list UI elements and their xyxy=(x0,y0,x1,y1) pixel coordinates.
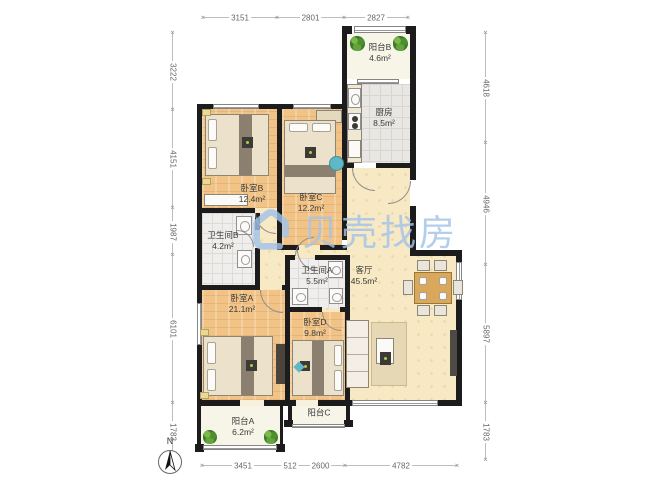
bedroom-c-chair xyxy=(329,156,344,171)
bathroom-b-toilet xyxy=(237,250,252,268)
room-area: 45.5m² xyxy=(351,276,377,287)
dimension-tick: ✕ xyxy=(170,400,175,407)
room-name: 卧室B xyxy=(239,183,265,194)
balcony-c-door-opening xyxy=(296,400,318,406)
balcony-b-post xyxy=(406,26,416,34)
room-name: 卧室A xyxy=(229,293,255,304)
nightstand xyxy=(200,392,209,399)
dimension-tick: ✕ xyxy=(483,457,488,464)
dimension-label-right-3: 1783 xyxy=(481,421,490,443)
room-label-balcony-b: 阳台B4.6m² xyxy=(369,42,392,64)
room-label-bathroom-b: 卫生间B4.2m² xyxy=(207,230,238,252)
west-wall xyxy=(197,104,202,406)
dimension-tick: ✕ xyxy=(170,252,175,259)
dimension-tick: ✕ xyxy=(454,462,459,469)
dining-chair xyxy=(417,260,430,271)
dimension-label-left-2: 1987 xyxy=(168,221,177,243)
compass-north-label: N xyxy=(167,436,174,446)
bathroom-b-right-wall xyxy=(255,248,260,285)
dimension-label-right-1: 4946 xyxy=(481,193,490,215)
kitchen-fridge xyxy=(348,140,361,158)
bedroom-b-bed xyxy=(205,114,269,176)
dimension-tick: ✕ xyxy=(483,140,488,147)
dimension-label-bottom-1: 512 xyxy=(281,461,298,470)
room-name: 阳台B xyxy=(369,42,392,53)
dimension-tick: ✕ xyxy=(483,30,488,37)
dimension-tick: ✕ xyxy=(170,205,175,212)
tv-console xyxy=(450,330,457,376)
room-label-bedroom-a: 卧室A21.1m² xyxy=(229,293,255,315)
bedroom-a-wardrobe xyxy=(276,344,285,384)
room-area: 21.1m² xyxy=(229,304,255,315)
bc-divider-wall xyxy=(277,104,282,250)
dimension-tick: ✕ xyxy=(200,14,205,21)
dimension-label-bottom-3: 4782 xyxy=(390,461,412,470)
dimension-tick: ✕ xyxy=(274,14,279,21)
dimension-label-bottom-2: 2600 xyxy=(310,461,332,470)
room-name: 厨房 xyxy=(373,107,395,118)
bathroom-a-top-wall xyxy=(285,255,295,260)
room-area: 8.5m² xyxy=(373,118,395,129)
dimension-label-left-0: 3222 xyxy=(168,61,177,83)
dimension-tick: ✕ xyxy=(170,30,175,37)
dining-chair xyxy=(417,305,430,316)
room-area: 4.6m² xyxy=(369,53,392,64)
nightstand xyxy=(202,178,211,185)
dimension-label-left-3: 6101 xyxy=(168,318,177,340)
room-area: 4.2m² xyxy=(207,241,238,252)
bedroom-c-bottom-wall xyxy=(320,245,347,250)
balcony-a-right-rail xyxy=(280,406,283,446)
dimension-tick: ✕ xyxy=(199,462,204,469)
bedroom-d-bed xyxy=(292,340,344,396)
east-mid-wall xyxy=(410,206,416,256)
dimension-tick: ✕ xyxy=(342,462,347,469)
kitchen-sink xyxy=(348,88,361,108)
room-name: 卫生间B xyxy=(207,230,238,241)
dimension-label-right-2: 5897 xyxy=(481,323,490,345)
dimension-label-left-1: 4151 xyxy=(168,148,177,170)
bedroom-a-window xyxy=(197,303,202,345)
compass: N xyxy=(152,434,188,478)
dimension-line-left xyxy=(172,33,173,460)
dimension-tick: ✕ xyxy=(405,14,410,21)
dining-chair xyxy=(434,260,447,271)
bedroom-c-bed xyxy=(284,120,336,194)
dimension-tick: ✕ xyxy=(170,107,175,114)
living-room-window xyxy=(352,400,438,406)
nightstand xyxy=(200,329,209,336)
nightstand xyxy=(202,109,211,116)
bedroom-a-top-wall xyxy=(197,285,260,290)
bedroom-a-right-wall xyxy=(285,255,290,406)
bedroom-b-bottom-wall xyxy=(197,208,255,213)
room-name: 阳台A xyxy=(232,416,255,427)
room-label-living-room: 客厅45.5m² xyxy=(351,265,377,287)
dining-chair xyxy=(403,280,413,295)
dimension-label-top-0: 3151 xyxy=(229,13,251,22)
bedroom-b-window xyxy=(213,104,259,109)
dimension-tick: ✕ xyxy=(341,14,346,21)
plant-icon xyxy=(203,430,217,444)
kitchen-balcony-window xyxy=(357,79,399,84)
room-label-kitchen: 厨房8.5m² xyxy=(373,107,395,129)
room-label-bathroom-a: 卫生间A5.5m² xyxy=(301,265,332,287)
dining-chair xyxy=(434,305,447,316)
step-wall xyxy=(410,250,462,256)
coffee-table-item xyxy=(380,352,391,365)
balcony-b-window xyxy=(354,26,406,33)
room-area: 5.5m² xyxy=(301,276,332,287)
dimension-tick: ✕ xyxy=(483,262,488,269)
balcony-a-window xyxy=(203,445,277,450)
balcony-c-window xyxy=(292,424,345,428)
plant-icon xyxy=(264,430,278,444)
dimension-label-top-2: 2827 xyxy=(365,13,387,22)
bedroom-a-bed xyxy=(203,336,273,396)
room-area: 12.2m² xyxy=(298,203,324,214)
balcony-b-post xyxy=(342,26,352,34)
dimension-label-top-1: 2801 xyxy=(300,13,322,22)
sofa xyxy=(346,320,369,388)
dimension-tick: ✕ xyxy=(483,400,488,407)
room-name: 卧室C xyxy=(298,192,324,203)
dining-chair xyxy=(453,280,463,295)
plant-icon xyxy=(393,36,408,51)
dining-table xyxy=(414,272,452,304)
balcony-b-left-wall xyxy=(342,26,347,84)
room-area: 6.2m² xyxy=(232,427,255,438)
room-name: 卧室D xyxy=(303,317,326,328)
bathroom-a-bottom-wall xyxy=(285,307,322,312)
room-name: 客厅 xyxy=(351,265,377,276)
bathroom-a-right-wall xyxy=(345,255,350,312)
room-label-bedroom-c: 卧室C12.2m² xyxy=(298,192,324,214)
room-label-balcony-a: 阳台A6.2m² xyxy=(232,416,255,438)
room-name: 阳台C xyxy=(307,408,330,419)
room-name: 卫生间A xyxy=(301,265,332,276)
east-upper-wall xyxy=(410,26,416,180)
plant-icon xyxy=(350,36,365,51)
balcony-a-post xyxy=(276,444,285,452)
balcony-c-post xyxy=(344,420,353,427)
balcony-a-door-opening xyxy=(240,400,264,406)
dimension-label-bottom-0: 3451 xyxy=(232,461,254,470)
dimension-label-right-0: 4618 xyxy=(481,77,490,99)
room-area: 12.4m² xyxy=(239,194,265,205)
room-label-bedroom-d: 卧室D9.8m² xyxy=(303,317,326,339)
bathroom-a-toilet xyxy=(329,288,343,304)
room-label-balcony-c: 阳台C xyxy=(307,408,330,419)
room-area: 9.8m² xyxy=(303,328,326,339)
room-label-bedroom-b: 卧室B12.4m² xyxy=(239,183,265,205)
kitchen-bottom-wall xyxy=(376,163,416,168)
bedroom-c-window xyxy=(293,104,331,109)
kitchen-stove xyxy=(348,113,361,130)
washing-machine xyxy=(292,288,308,305)
